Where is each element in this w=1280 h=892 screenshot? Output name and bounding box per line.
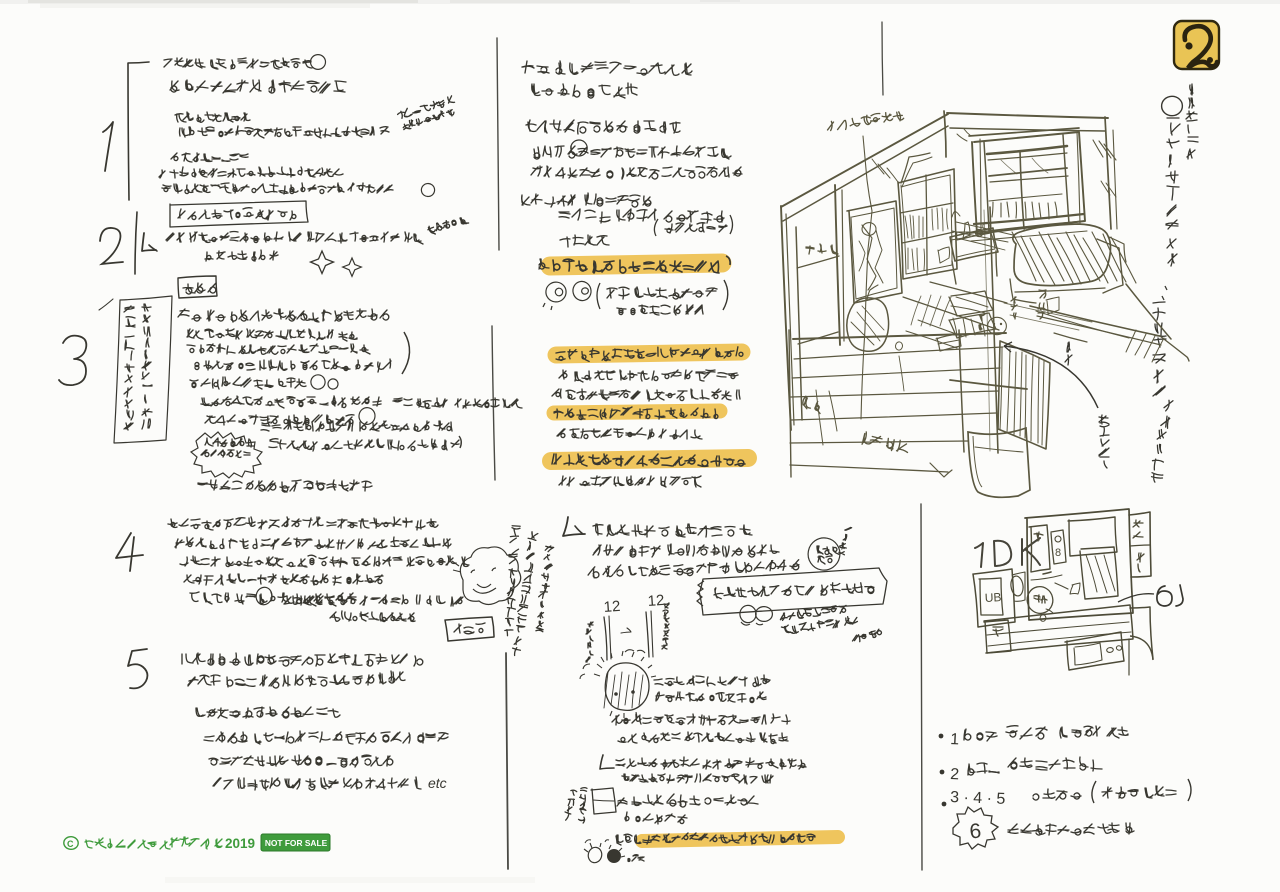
svg-text:NOT FOR SALE: NOT FOR SALE <box>265 838 328 848</box>
svg-text:etc: etc <box>428 775 447 791</box>
svg-text:UB: UB <box>984 590 1001 605</box>
svg-text:2019: 2019 <box>225 836 255 851</box>
svg-text:3 · 4 · 5: 3 · 4 · 5 <box>950 789 1006 808</box>
svg-text:12: 12 <box>603 598 621 616</box>
svg-text:C: C <box>67 839 74 849</box>
svg-text:2: 2 <box>950 766 960 783</box>
svg-text:6: 6 <box>969 820 983 844</box>
svg-text:8: 8 <box>1055 547 1061 559</box>
svg-text:12: 12 <box>647 592 665 610</box>
svg-text:1: 1 <box>950 731 960 748</box>
